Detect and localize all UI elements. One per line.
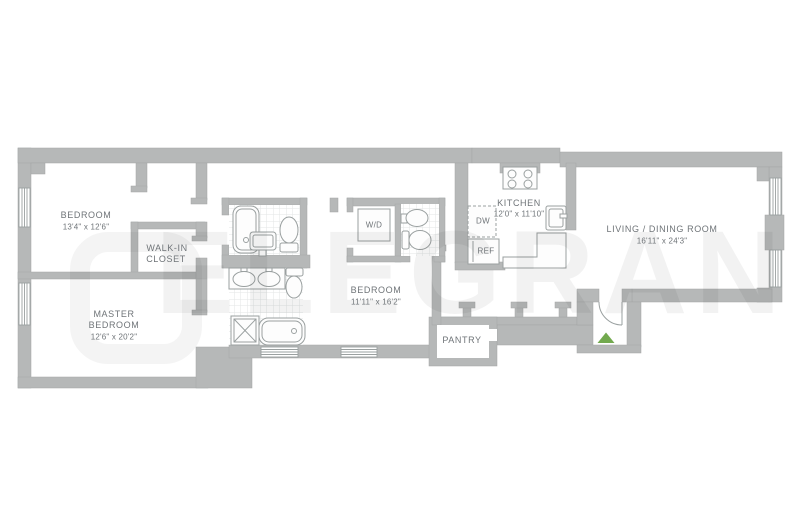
- wall-top-living: [560, 152, 782, 167]
- label-dishwasher: DW: [476, 217, 490, 226]
- room-label-bedroom2: BEDROOM: [351, 285, 402, 295]
- wall-left: [18, 148, 31, 388]
- room-label-master-1: MASTER: [93, 309, 134, 319]
- label-refrigerator: REF: [478, 247, 495, 256]
- floorplan-canvas: ELEGRAN BEDROOM 13'4" x 12'6" WALK-IN CL…: [0, 0, 800, 532]
- room-label-pantry: PANTRY: [442, 335, 481, 345]
- room-dims-bedroom2: 11'11" x 16'2": [351, 298, 401, 307]
- stove: [503, 167, 537, 189]
- room-label-bedroom1: BEDROOM: [61, 210, 112, 220]
- window-left-2: [19, 283, 30, 325]
- wall-top-main: [18, 148, 472, 163]
- window-south-1: [261, 347, 298, 357]
- room-dims-kitchen: 12'0" x 11'10": [494, 210, 545, 219]
- wall-top-kitchen: [472, 148, 560, 163]
- room-dims-bedroom1: 13'4" x 12'6": [63, 223, 109, 232]
- floorplan-drawing: ELEGRAN: [0, 0, 800, 532]
- room-dims-living: 16'11" x 24'3": [637, 237, 688, 246]
- room-label-walkin-2: CLOSET: [146, 254, 186, 264]
- room-label-master-2: BEDROOM: [89, 320, 140, 330]
- room-dims-master: 12'6" x 20'2": [91, 333, 137, 342]
- label-washer-dryer: W/D: [366, 221, 382, 230]
- room-label-walkin-1: WALK-IN: [146, 243, 187, 253]
- window-south-2: [341, 347, 377, 357]
- window-left-1: [19, 188, 30, 227]
- wall-master-bottom: [18, 377, 208, 388]
- room-label-living: LIVING / DINING ROOM: [606, 224, 717, 234]
- room-label-kitchen: KITCHEN: [497, 198, 541, 208]
